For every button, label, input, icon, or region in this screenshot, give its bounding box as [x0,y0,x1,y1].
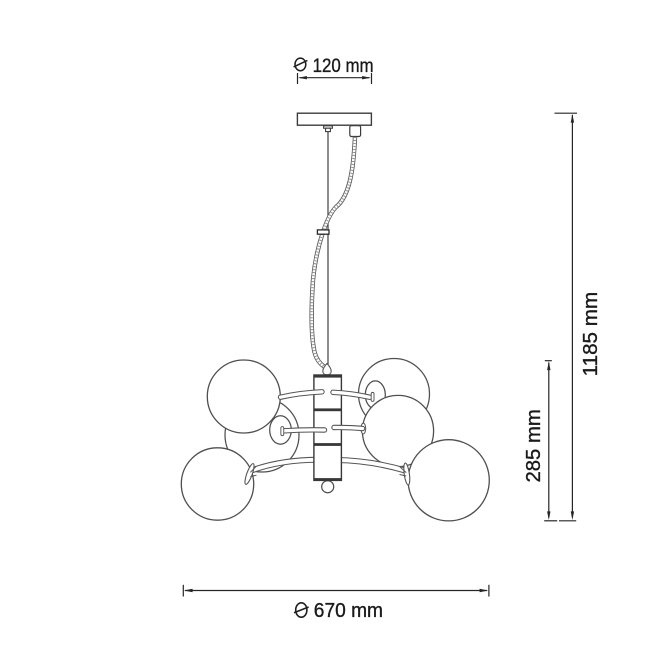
svg-text:1185 mm: 1185 mm [580,292,602,377]
svg-text:670 mm: 670 mm [314,600,383,622]
svg-text:285 mm: 285 mm [523,409,545,482]
svg-text:120 mm: 120 mm [313,55,374,77]
